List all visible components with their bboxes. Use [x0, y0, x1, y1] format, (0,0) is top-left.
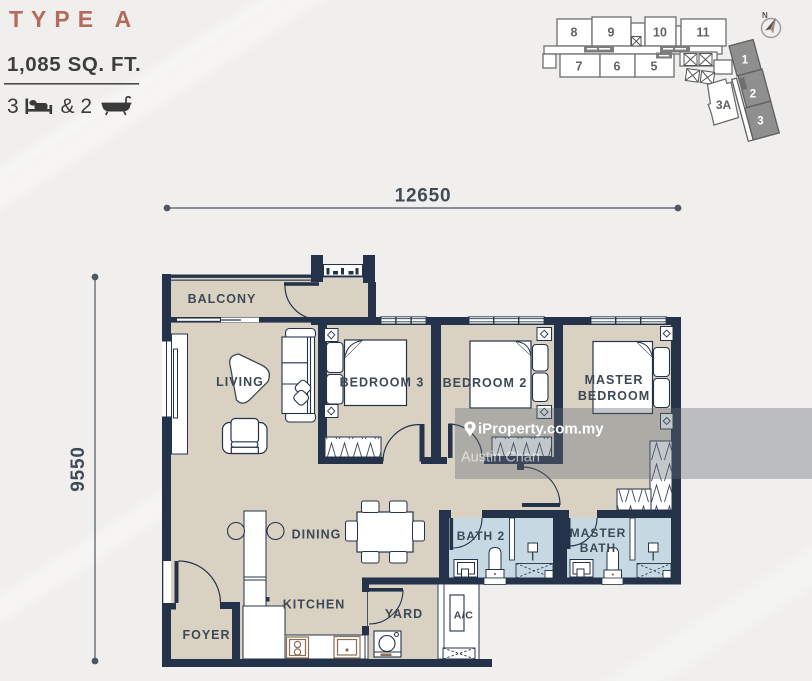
- svg-text:9550: 9550: [68, 446, 89, 491]
- svg-text:BALCONY: BALCONY: [188, 292, 257, 306]
- svg-text:MASTER: MASTER: [570, 526, 627, 540]
- svg-text:12650: 12650: [395, 186, 452, 207]
- svg-text:1: 1: [742, 55, 749, 67]
- svg-text:9: 9: [608, 26, 615, 40]
- svg-text:MASTER: MASTER: [585, 373, 644, 387]
- svg-text:iProperty.com.my: iProperty.com.my: [478, 421, 604, 438]
- svg-text:BATH 2: BATH 2: [457, 529, 505, 543]
- svg-text:10: 10: [653, 26, 667, 40]
- svg-text:TYPE A: TYPE A: [9, 6, 139, 32]
- svg-text:3A: 3A: [716, 98, 732, 112]
- svg-text:A/C: A/C: [454, 610, 474, 622]
- svg-text:1,085 SQ. FT.: 1,085 SQ. FT.: [7, 53, 141, 76]
- svg-text:BEDROOM 3: BEDROOM 3: [340, 376, 425, 390]
- svg-text:3: 3: [757, 116, 763, 128]
- svg-text:2: 2: [750, 89, 756, 101]
- svg-text:3: 3: [7, 95, 19, 118]
- svg-text:5: 5: [651, 60, 658, 74]
- svg-text:DINING: DINING: [292, 528, 342, 542]
- svg-text:BEDROOM: BEDROOM: [578, 389, 650, 403]
- svg-text:& 2: & 2: [61, 95, 93, 118]
- svg-text:YARD: YARD: [385, 607, 423, 621]
- svg-text:FOYER: FOYER: [182, 628, 230, 642]
- svg-text:11: 11: [696, 26, 709, 40]
- svg-text:KITCHEN: KITCHEN: [283, 598, 346, 612]
- svg-text:Austin Chan: Austin Chan: [461, 450, 540, 466]
- svg-text:6: 6: [614, 60, 621, 74]
- svg-text:BATH: BATH: [580, 541, 616, 555]
- svg-text:LIVING: LIVING: [216, 375, 264, 389]
- svg-text:7: 7: [576, 60, 583, 74]
- svg-text:8: 8: [571, 26, 578, 40]
- svg-text:BEDROOM 2: BEDROOM 2: [443, 376, 528, 390]
